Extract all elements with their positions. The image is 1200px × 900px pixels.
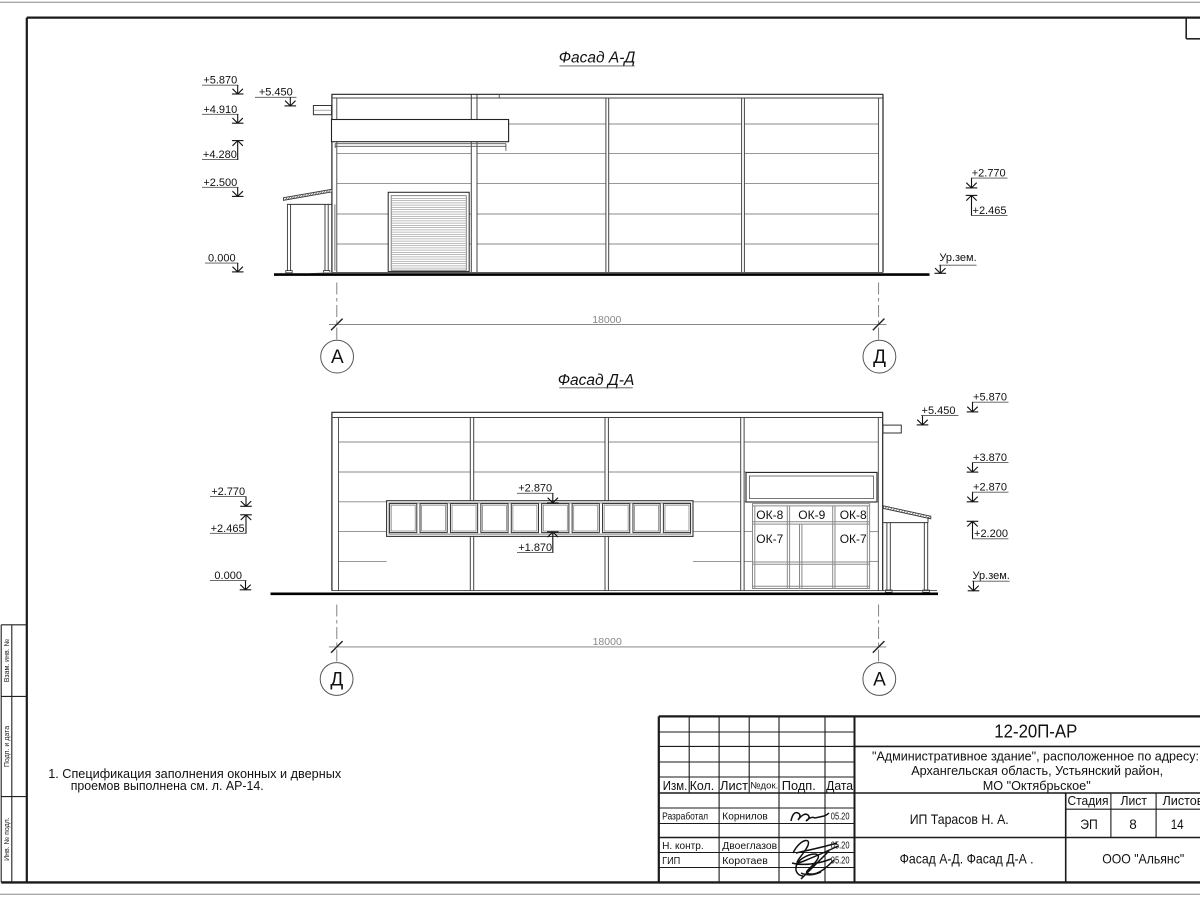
svg-text:Д: Д — [873, 347, 886, 368]
svg-text:ОК-7: ОК-7 — [756, 532, 783, 546]
svg-text:ОК-8: ОК-8 — [756, 508, 783, 522]
svg-text:Ур.зем.: Ур.зем. — [973, 570, 1010, 582]
svg-text:ГИП: ГИП — [662, 856, 680, 867]
svg-text:ООО "Альянс": ООО "Альянс" — [1102, 851, 1184, 867]
svg-text:Лист: Лист — [720, 779, 748, 793]
svg-text:Н. контр.: Н. контр. — [662, 841, 704, 852]
svg-text:18000: 18000 — [592, 314, 621, 326]
svg-text:МО "Октябрьское": МО "Октябрьское" — [983, 778, 1091, 793]
svg-text:Листов: Листов — [1163, 794, 1200, 808]
svg-text:Подп.: Подп. — [782, 779, 816, 793]
svg-text:18000: 18000 — [593, 636, 622, 648]
svg-text:ОК-7: ОК-7 — [840, 532, 867, 546]
svg-text:"Административное здание", рас: "Административное здание", расположенное… — [872, 749, 1199, 764]
svg-text:Кол.: Кол. — [690, 779, 715, 793]
svg-text:05.20: 05.20 — [831, 841, 850, 852]
svg-text:Взам. инв. №: Взам. инв. № — [4, 639, 11, 682]
svg-text:Изм.: Изм. — [663, 779, 688, 793]
svg-text:Стадия: Стадия — [1068, 794, 1109, 808]
svg-text:14: 14 — [1171, 817, 1184, 832]
svg-text:Коротаев: Коротаев — [722, 855, 768, 867]
svg-text:8: 8 — [1129, 817, 1137, 832]
svg-text:+5.450: +5.450 — [922, 405, 956, 417]
svg-text:+2.870: +2.870 — [518, 483, 552, 495]
svg-text:ОК-8: ОК-8 — [840, 508, 867, 522]
svg-text:ЭП: ЭП — [1080, 817, 1098, 832]
svg-text:ИП Тарасов Н. А.: ИП Тарасов Н. А. — [910, 811, 1009, 827]
svg-text:Корнилов: Корнилов — [722, 811, 768, 823]
svg-text:Фасад А-Д: Фасад А-Д — [559, 50, 636, 67]
svg-text:Инв. № подл.: Инв. № подл. — [4, 817, 11, 861]
svg-text:+5.450: +5.450 — [259, 87, 293, 99]
svg-text:Дата: Дата — [826, 779, 853, 793]
svg-text:Д: Д — [330, 670, 343, 691]
svg-text:Лист: Лист — [1121, 794, 1148, 808]
svg-text:А: А — [873, 670, 886, 691]
svg-text:+2.770: +2.770 — [972, 167, 1006, 179]
svg-text:А: А — [331, 347, 344, 368]
svg-text:Разработал: Разработал — [662, 811, 708, 823]
svg-text:Ур.зем.: Ур.зем. — [939, 252, 976, 264]
svg-text:Фасад А-Д. Фасад Д-А .: Фасад А-Д. Фасад Д-А . — [900, 851, 1034, 867]
svg-text:проемов выполнена см. л. АР-14: проемов выполнена см. л. АР-14. — [71, 778, 264, 793]
svg-text:ОК-9: ОК-9 — [798, 508, 825, 522]
svg-text:№док.: №док. — [750, 781, 778, 792]
svg-text:Фасад Д-А: Фасад Д-А — [558, 372, 635, 389]
svg-text:Двоеглазов: Двоеглазов — [722, 840, 777, 852]
svg-text:05.20: 05.20 — [831, 811, 850, 822]
svg-text:12-20П-АР: 12-20П-АР — [994, 722, 1077, 742]
svg-text:Подп. и дата: Подп. и дата — [4, 726, 11, 767]
svg-text:Архангельская область, Устьянс: Архангельская область, Устьянский район, — [911, 763, 1163, 778]
